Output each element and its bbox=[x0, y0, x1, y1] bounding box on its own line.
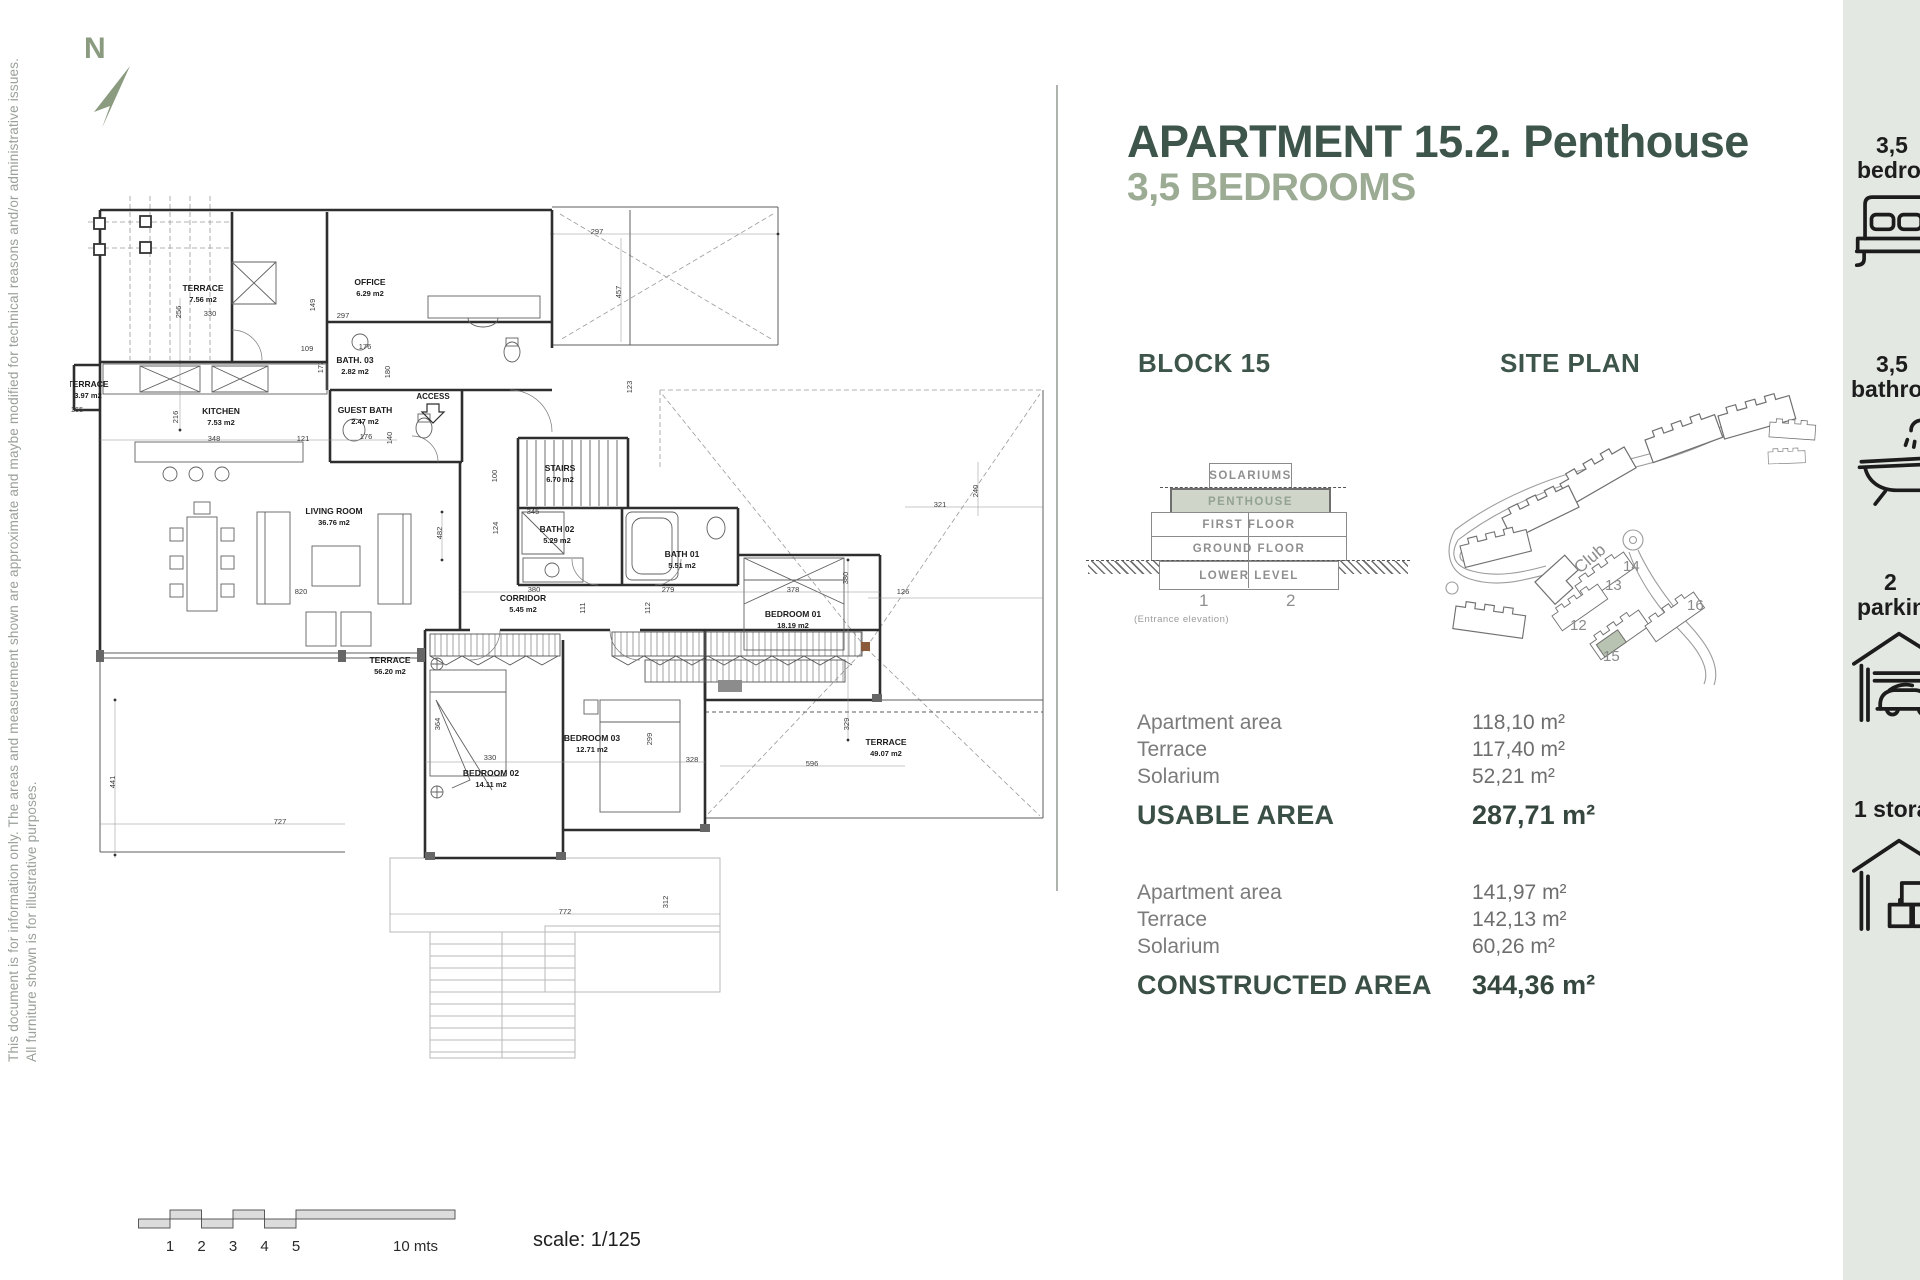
total-label: USABLE AREA bbox=[1137, 800, 1472, 831]
room-label: 7.56 m2 bbox=[189, 295, 217, 304]
room-label: TERRACE bbox=[182, 283, 223, 293]
stair-treads bbox=[527, 440, 617, 506]
dimension-label: 172 bbox=[316, 361, 325, 374]
bathrooms-label: bathrooms bbox=[1851, 376, 1920, 403]
north-arrow-icon bbox=[94, 66, 140, 130]
north-label: N bbox=[84, 32, 106, 66]
room-label: 5.45 m2 bbox=[509, 605, 537, 614]
block-heading: BLOCK 15 bbox=[1138, 348, 1271, 379]
room-label: 36.76 m2 bbox=[318, 518, 350, 527]
room-label: BEDROOM 01 bbox=[765, 609, 821, 619]
row-value: 118,10 m² bbox=[1472, 711, 1565, 738]
site-label-16: 16 bbox=[1687, 597, 1704, 614]
row-value: 142,13 m² bbox=[1472, 908, 1567, 935]
row-value: 141,97 m² bbox=[1472, 881, 1567, 908]
constructed-area-table: Apartment area141,97 m² Terrace142,13 m²… bbox=[1137, 881, 1617, 962]
elevation-unit-2: 2 bbox=[1286, 591, 1295, 611]
storage-icon bbox=[1852, 831, 1920, 935]
room-label: BEDROOM 02 bbox=[463, 768, 519, 778]
scale-tick-1: 1 bbox=[166, 1238, 174, 1255]
disclaimer-line-2: All furniture shown is for illustrative … bbox=[24, 781, 39, 1062]
storage-count: 1 storage bbox=[1854, 796, 1920, 823]
elevation-floor-solariums: SOLARIUMS bbox=[1209, 463, 1292, 489]
scale-end-label: 10 mts bbox=[393, 1238, 438, 1255]
room-label: 12.71 m2 bbox=[576, 745, 608, 754]
row-label: Solarium bbox=[1137, 935, 1472, 962]
site-label-15: 15 bbox=[1603, 648, 1620, 665]
elevation-caption: (Entrance elevation) bbox=[1134, 614, 1229, 625]
elevation-unit-divider bbox=[1248, 512, 1249, 588]
room-label: 3.97 m2 bbox=[74, 391, 102, 400]
dimension-label: 380 bbox=[841, 572, 850, 585]
dimension-label: 299 bbox=[645, 733, 654, 746]
row-value: 117,40 m² bbox=[1472, 738, 1565, 765]
room-label: 6.29 m2 bbox=[356, 289, 384, 298]
dimension-label: 109 bbox=[301, 344, 314, 353]
table-row: Solarium60,26 m² bbox=[1137, 935, 1617, 962]
room-label: 5.51 m2 bbox=[668, 561, 696, 570]
scale-tick-5: 5 bbox=[292, 1238, 300, 1255]
dimension-label: 820 bbox=[295, 587, 308, 596]
dimension-label: 328 bbox=[686, 755, 699, 764]
page-subtitle: 3,5 BEDROOMS bbox=[1127, 166, 1416, 210]
dimension-label: 256 bbox=[174, 306, 183, 319]
dimension-label: 216 bbox=[171, 411, 180, 424]
room-label: 5.29 m2 bbox=[543, 536, 571, 545]
room-labels: TERRACE7.56 m2OFFICE6.29 m2BATH. 032.82 … bbox=[70, 277, 907, 789]
room-label: LIVING ROOM bbox=[305, 506, 362, 516]
row-value: 52,21 m² bbox=[1472, 765, 1555, 792]
table-row: Terrace142,13 m² bbox=[1137, 908, 1617, 935]
row-label: Terrace bbox=[1137, 738, 1472, 765]
floor-plan-drawing: ACCESS TERRACE7.56 m2OFFICE6.29 m2BATH. … bbox=[70, 185, 1060, 1075]
room-label: 6.70 m2 bbox=[546, 475, 574, 484]
dimension-label: 364 bbox=[433, 718, 442, 731]
scale-ratio-label: scale: 1/125 bbox=[533, 1229, 641, 1252]
parking-count: 2 bbox=[1884, 569, 1897, 596]
dimension-label: 330 bbox=[484, 753, 497, 762]
row-label: Apartment area bbox=[1137, 711, 1472, 738]
dimension-label: 124 bbox=[491, 522, 500, 535]
bedrooms-count: 3,5 bbox=[1876, 132, 1908, 159]
site-label-14: 14 bbox=[1623, 558, 1640, 575]
room-label: STAIRS bbox=[545, 463, 576, 473]
dimension-lines bbox=[100, 234, 1043, 914]
room-label: BATH 02 bbox=[540, 524, 575, 534]
floorplan-brochure-page: { "meta": { "north_label": "N" }, "discl… bbox=[0, 0, 1920, 1280]
room-label: BEDROOM 03 bbox=[564, 733, 620, 743]
row-label: Terrace bbox=[1137, 908, 1472, 935]
scale-tick-3: 3 bbox=[229, 1238, 237, 1255]
table-row: Terrace117,40 m² bbox=[1137, 738, 1617, 765]
elevation-floor-penthouse: PENTHOUSE bbox=[1170, 488, 1331, 515]
total-label: CONSTRUCTED AREA bbox=[1137, 970, 1472, 1001]
dimension-label: 378 bbox=[787, 585, 800, 594]
dimension-label: 348 bbox=[208, 434, 221, 443]
page-title: APARTMENT 15.2. Penthouse bbox=[1127, 116, 1749, 168]
lower-stairs-structure bbox=[390, 858, 720, 1058]
block-elevation-diagram: SOLARIUMS PENTHOUSE FIRST FLOOR GROUND F… bbox=[1100, 460, 1400, 635]
dimension-label: 330 bbox=[204, 309, 217, 318]
scale-tick-4: 4 bbox=[260, 1238, 268, 1255]
dimension-label: 123 bbox=[625, 381, 634, 394]
usable-area-table: Apartment area118,10 m² Terrace117,40 m²… bbox=[1137, 711, 1617, 792]
parking-label: parking bbox=[1857, 594, 1920, 621]
dimension-label: 380 bbox=[528, 585, 541, 594]
room-label: GUEST BATH bbox=[338, 405, 393, 415]
disclaimer-line-1: This document is for information only. T… bbox=[6, 58, 21, 1062]
site-plan-map: Club 14 13 12 16 15 bbox=[1440, 378, 1830, 698]
bathrooms-count: 3,5 bbox=[1876, 351, 1908, 378]
elevation-unit-1: 1 bbox=[1199, 591, 1208, 611]
site-label-12: 12 bbox=[1570, 617, 1587, 634]
dimension-label: 176 bbox=[360, 432, 373, 441]
room-label: 18.19 m2 bbox=[777, 621, 809, 630]
dimension-label: 441 bbox=[108, 776, 117, 789]
row-value: 60,26 m² bbox=[1472, 935, 1555, 962]
room-label: TERRACE bbox=[70, 379, 109, 389]
elevation-hatch-right bbox=[1337, 561, 1408, 574]
room-label: 2.82 m2 bbox=[341, 367, 369, 376]
site-plan-heading: SITE PLAN bbox=[1500, 348, 1640, 379]
table-row: Solarium52,21 m² bbox=[1137, 765, 1617, 792]
room-label: 2.47 m2 bbox=[351, 417, 379, 426]
total-value: 344,36 m² bbox=[1472, 970, 1595, 1001]
dimension-label: 140 bbox=[385, 432, 394, 445]
room-label: TERRACE bbox=[369, 655, 410, 665]
table-row: Apartment area141,97 m² bbox=[1137, 881, 1617, 908]
dimension-label: 321 bbox=[934, 500, 947, 509]
dimension-label: 240 bbox=[971, 485, 980, 498]
scale-bar: 1 2 3 4 5 10 mts bbox=[138, 1209, 468, 1259]
room-label: OFFICE bbox=[354, 277, 385, 287]
room-label: KITCHEN bbox=[202, 406, 240, 416]
room-label: TERRACE bbox=[865, 737, 906, 747]
room-label: 14.11 m2 bbox=[475, 780, 506, 789]
bed-icon bbox=[1854, 190, 1920, 276]
room-label: BATH 01 bbox=[665, 549, 700, 559]
dimension-label: 596 bbox=[806, 759, 819, 768]
bath-icon bbox=[1854, 406, 1920, 512]
dimension-label: 312 bbox=[661, 896, 670, 909]
usable-area-total: USABLE AREA 287,71 m² bbox=[1137, 800, 1617, 831]
dimension-label: 329 bbox=[842, 718, 851, 731]
dimension-label: 149 bbox=[308, 299, 317, 312]
dimension-label: 112 bbox=[643, 602, 652, 614]
scale-tick-2: 2 bbox=[197, 1238, 205, 1255]
elevation-floor-lower: LOWER LEVEL bbox=[1159, 561, 1339, 590]
room-label: 7.53 m2 bbox=[207, 418, 235, 427]
site-label-13: 13 bbox=[1605, 577, 1622, 594]
dimension-label: 482 bbox=[435, 527, 444, 540]
total-value: 287,71 m² bbox=[1472, 800, 1595, 831]
dimension-label: 176 bbox=[359, 342, 372, 351]
elevation-floor-ground: GROUND FLOOR bbox=[1151, 536, 1347, 561]
site-buildings bbox=[1453, 390, 1816, 660]
room-label: 49.07 m2 bbox=[870, 749, 902, 758]
bedrooms-label: bedrooms bbox=[1857, 157, 1920, 184]
access-arrow-icon bbox=[422, 404, 444, 423]
parking-icon bbox=[1852, 626, 1920, 726]
dimension-label: 279 bbox=[662, 585, 675, 594]
row-label: Apartment area bbox=[1137, 881, 1472, 908]
dimension-label: 772 bbox=[559, 907, 572, 916]
dimension-label: 180 bbox=[383, 366, 392, 379]
dimension-label: 457 bbox=[614, 286, 623, 299]
dimension-label: 126 bbox=[897, 587, 910, 596]
dimension-label: 297 bbox=[591, 227, 604, 236]
room-label: BATH. 03 bbox=[336, 355, 373, 365]
dimension-label: 297 bbox=[337, 311, 350, 320]
room-label: 56.20 m2 bbox=[374, 667, 406, 676]
dimension-label: 121 bbox=[297, 434, 310, 443]
dimension-label: 111 bbox=[578, 602, 587, 613]
door-arcs bbox=[232, 330, 681, 660]
dimension-labels: 2563301492971091761721802163481211761401… bbox=[70, 227, 980, 916]
elevation-floor-first: FIRST FLOOR bbox=[1151, 512, 1347, 537]
dimension-label: 345 bbox=[527, 507, 540, 516]
table-row: Apartment area118,10 m² bbox=[1137, 711, 1617, 738]
row-label: Solarium bbox=[1137, 765, 1472, 792]
dimension-label: 727 bbox=[274, 817, 287, 826]
constructed-area-total: CONSTRUCTED AREA 344,36 m² bbox=[1137, 970, 1617, 1001]
access-label: ACCESS bbox=[416, 392, 450, 401]
room-label: CORRIDOR bbox=[500, 593, 546, 603]
wardrobes bbox=[430, 632, 862, 682]
dimension-label: 100 bbox=[490, 470, 499, 483]
dimension-label: 165 bbox=[71, 405, 84, 414]
elevation-hatch-left bbox=[1088, 561, 1159, 574]
